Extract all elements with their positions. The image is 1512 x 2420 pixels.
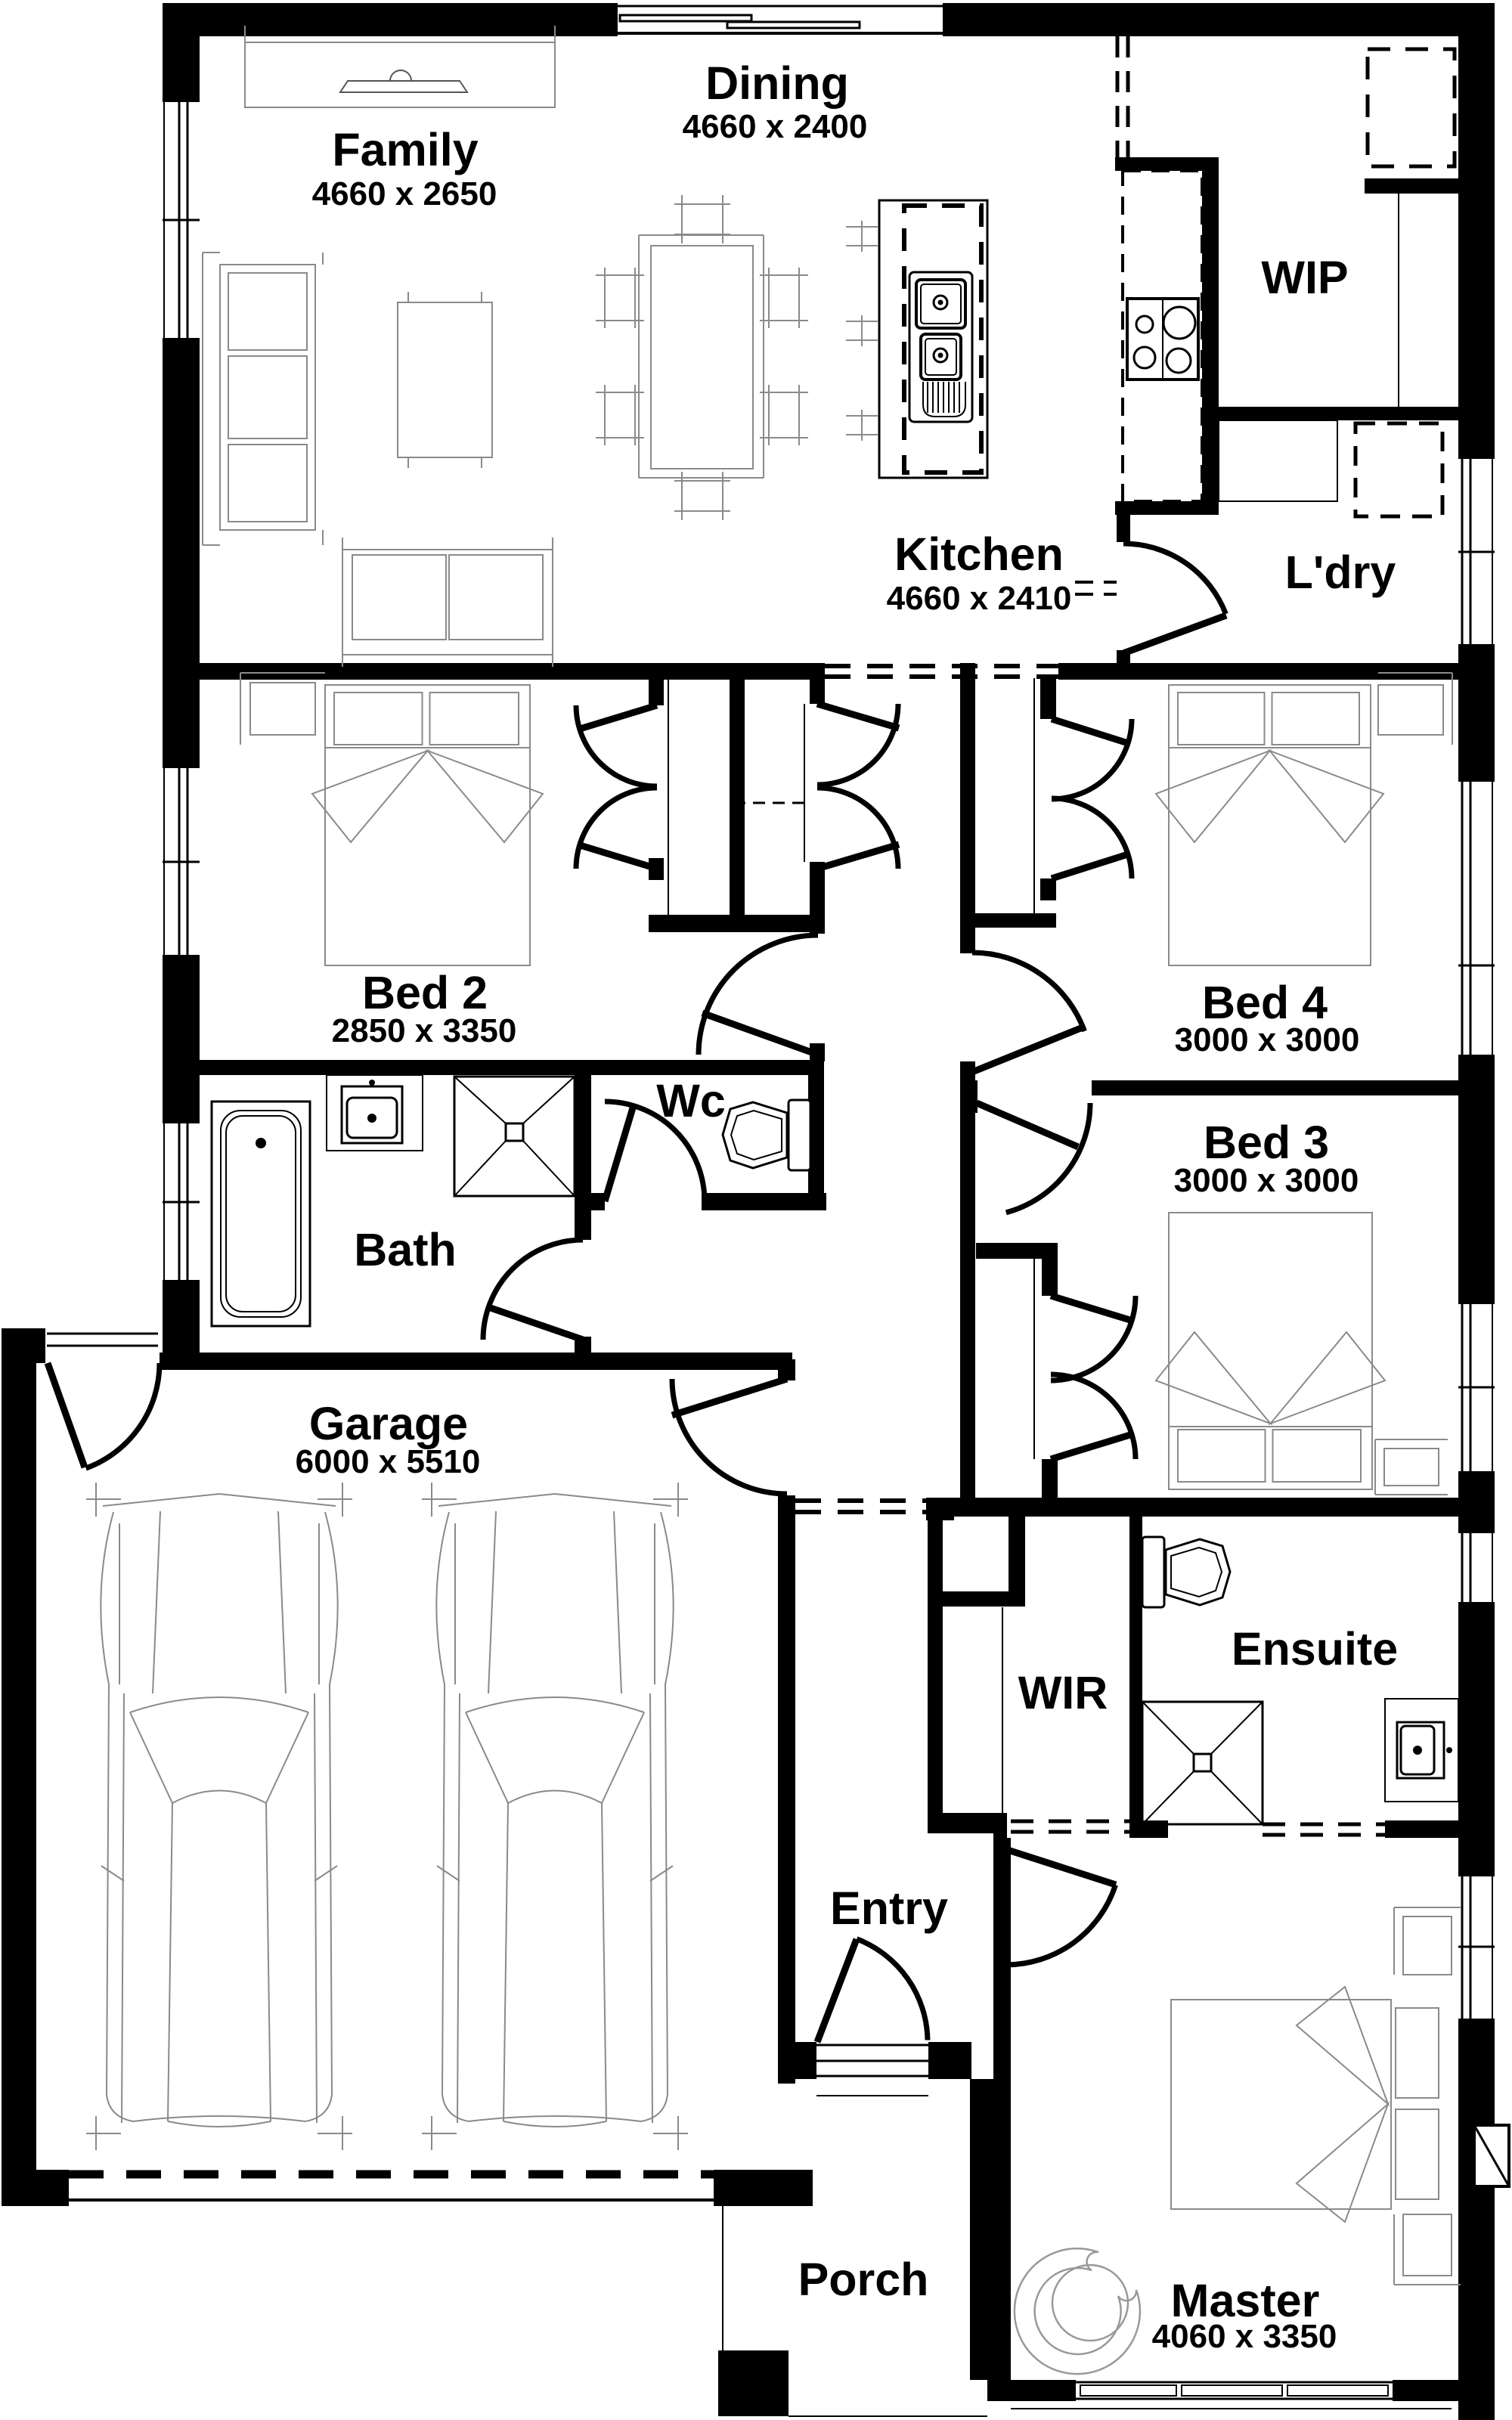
svg-text:WIP: WIP [1261,252,1348,303]
svg-text:4660 x 2650: 4660 x 2650 [312,175,497,212]
svg-text:3000 x 3000: 3000 x 3000 [1175,1021,1360,1058]
svg-text:Family: Family [332,124,478,175]
svg-text:4660 x 2400: 4660 x 2400 [683,108,868,145]
svg-text:Dining: Dining [705,57,849,109]
svg-text:Wc: Wc [656,1075,726,1126]
svg-text:Garage: Garage [309,1398,468,1449]
svg-text:Bed 2: Bed 2 [362,967,488,1018]
svg-text:3000 x 3000: 3000 x 3000 [1174,1162,1359,1199]
svg-text:4060 x 3350: 4060 x 3350 [1152,2318,1337,2355]
svg-text:4660 x 2410: 4660 x 2410 [887,580,1072,617]
svg-text:Entry: Entry [830,1882,948,1934]
svg-text:6000 x 5510: 6000 x 5510 [296,1443,481,1480]
svg-text:2850 x 3350: 2850 x 3350 [332,1012,517,1049]
svg-text:WIR: WIR [1018,1667,1108,1718]
svg-text:Bed 3: Bed 3 [1204,1117,1329,1168]
svg-text:Porch: Porch [798,2254,929,2305]
svg-text:Ensuite: Ensuite [1232,1623,1398,1675]
svg-text:L'dry: L'dry [1285,547,1396,598]
svg-text:Bed 4: Bed 4 [1202,977,1328,1028]
svg-text:Kitchen: Kitchen [894,528,1064,580]
svg-text:Bath: Bath [354,1224,457,1275]
